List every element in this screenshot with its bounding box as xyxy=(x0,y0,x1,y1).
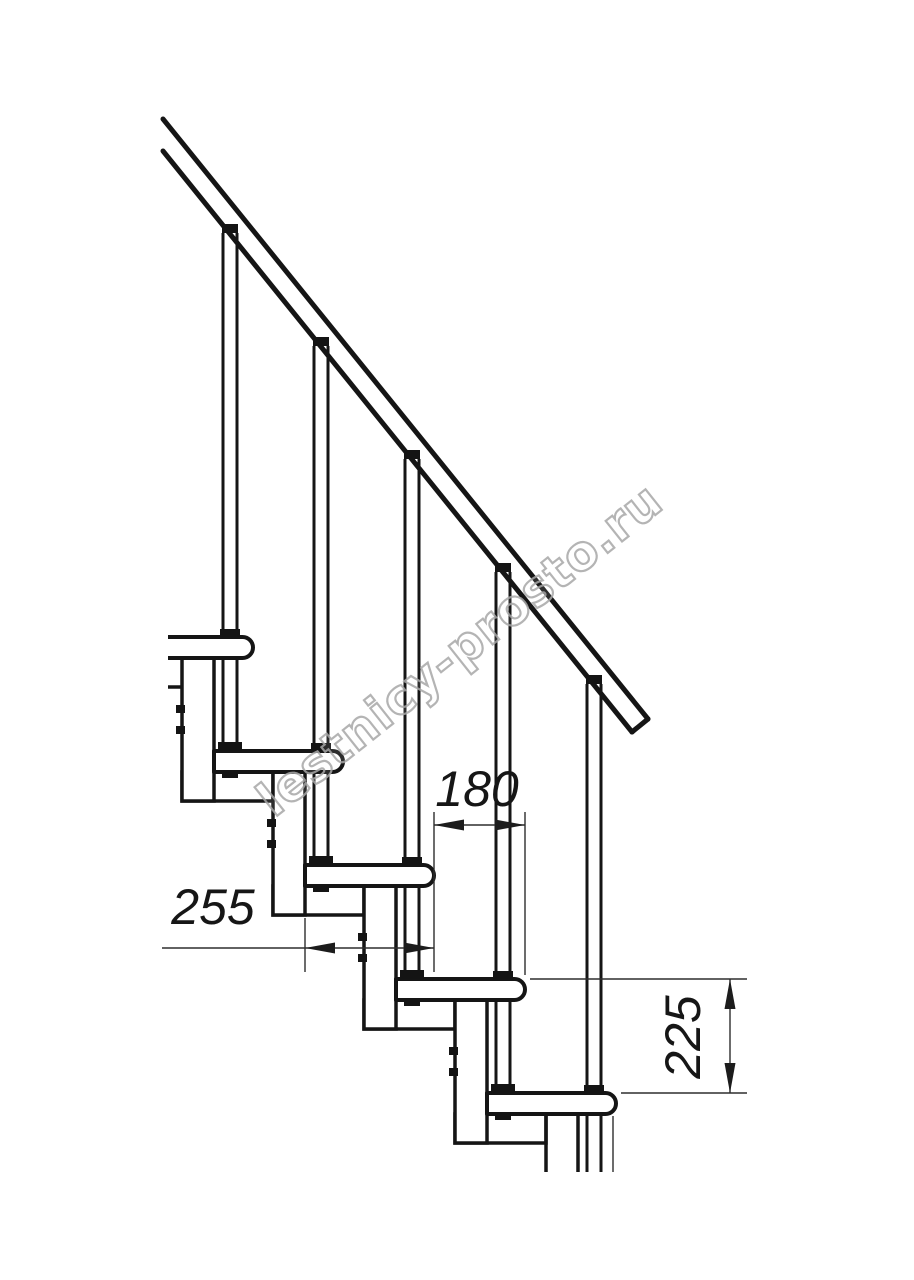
tread-3 xyxy=(305,865,434,886)
dimension-255-label: 255 xyxy=(170,879,255,935)
baluster-1-shaft xyxy=(223,233,237,742)
tread-1 xyxy=(168,637,253,658)
staircase-drawing: 180 255 225 xyxy=(0,0,914,1280)
support-column-5 xyxy=(546,1114,578,1172)
dimension-225-label: 225 xyxy=(655,995,711,1080)
support-column-3 xyxy=(364,886,396,1029)
support-column-4 xyxy=(455,1000,487,1143)
tread-2 xyxy=(214,751,343,772)
handrail-end-cut xyxy=(632,719,648,732)
baluster-3-shaft xyxy=(405,459,419,970)
technical-drawing: 180 255 225 lestnicy-prosto.ru xyxy=(0,0,914,1280)
dimension-step-rise: 225 xyxy=(530,979,747,1093)
tread-5 xyxy=(487,1093,616,1114)
support-column-2 xyxy=(273,772,305,915)
dimension-180-label: 180 xyxy=(435,761,519,817)
dimension-225-lines xyxy=(530,979,747,1093)
treads xyxy=(168,637,616,1114)
support-column-1 xyxy=(182,658,214,801)
tread-4 xyxy=(396,979,525,1000)
baluster-2-shaft xyxy=(314,346,328,856)
